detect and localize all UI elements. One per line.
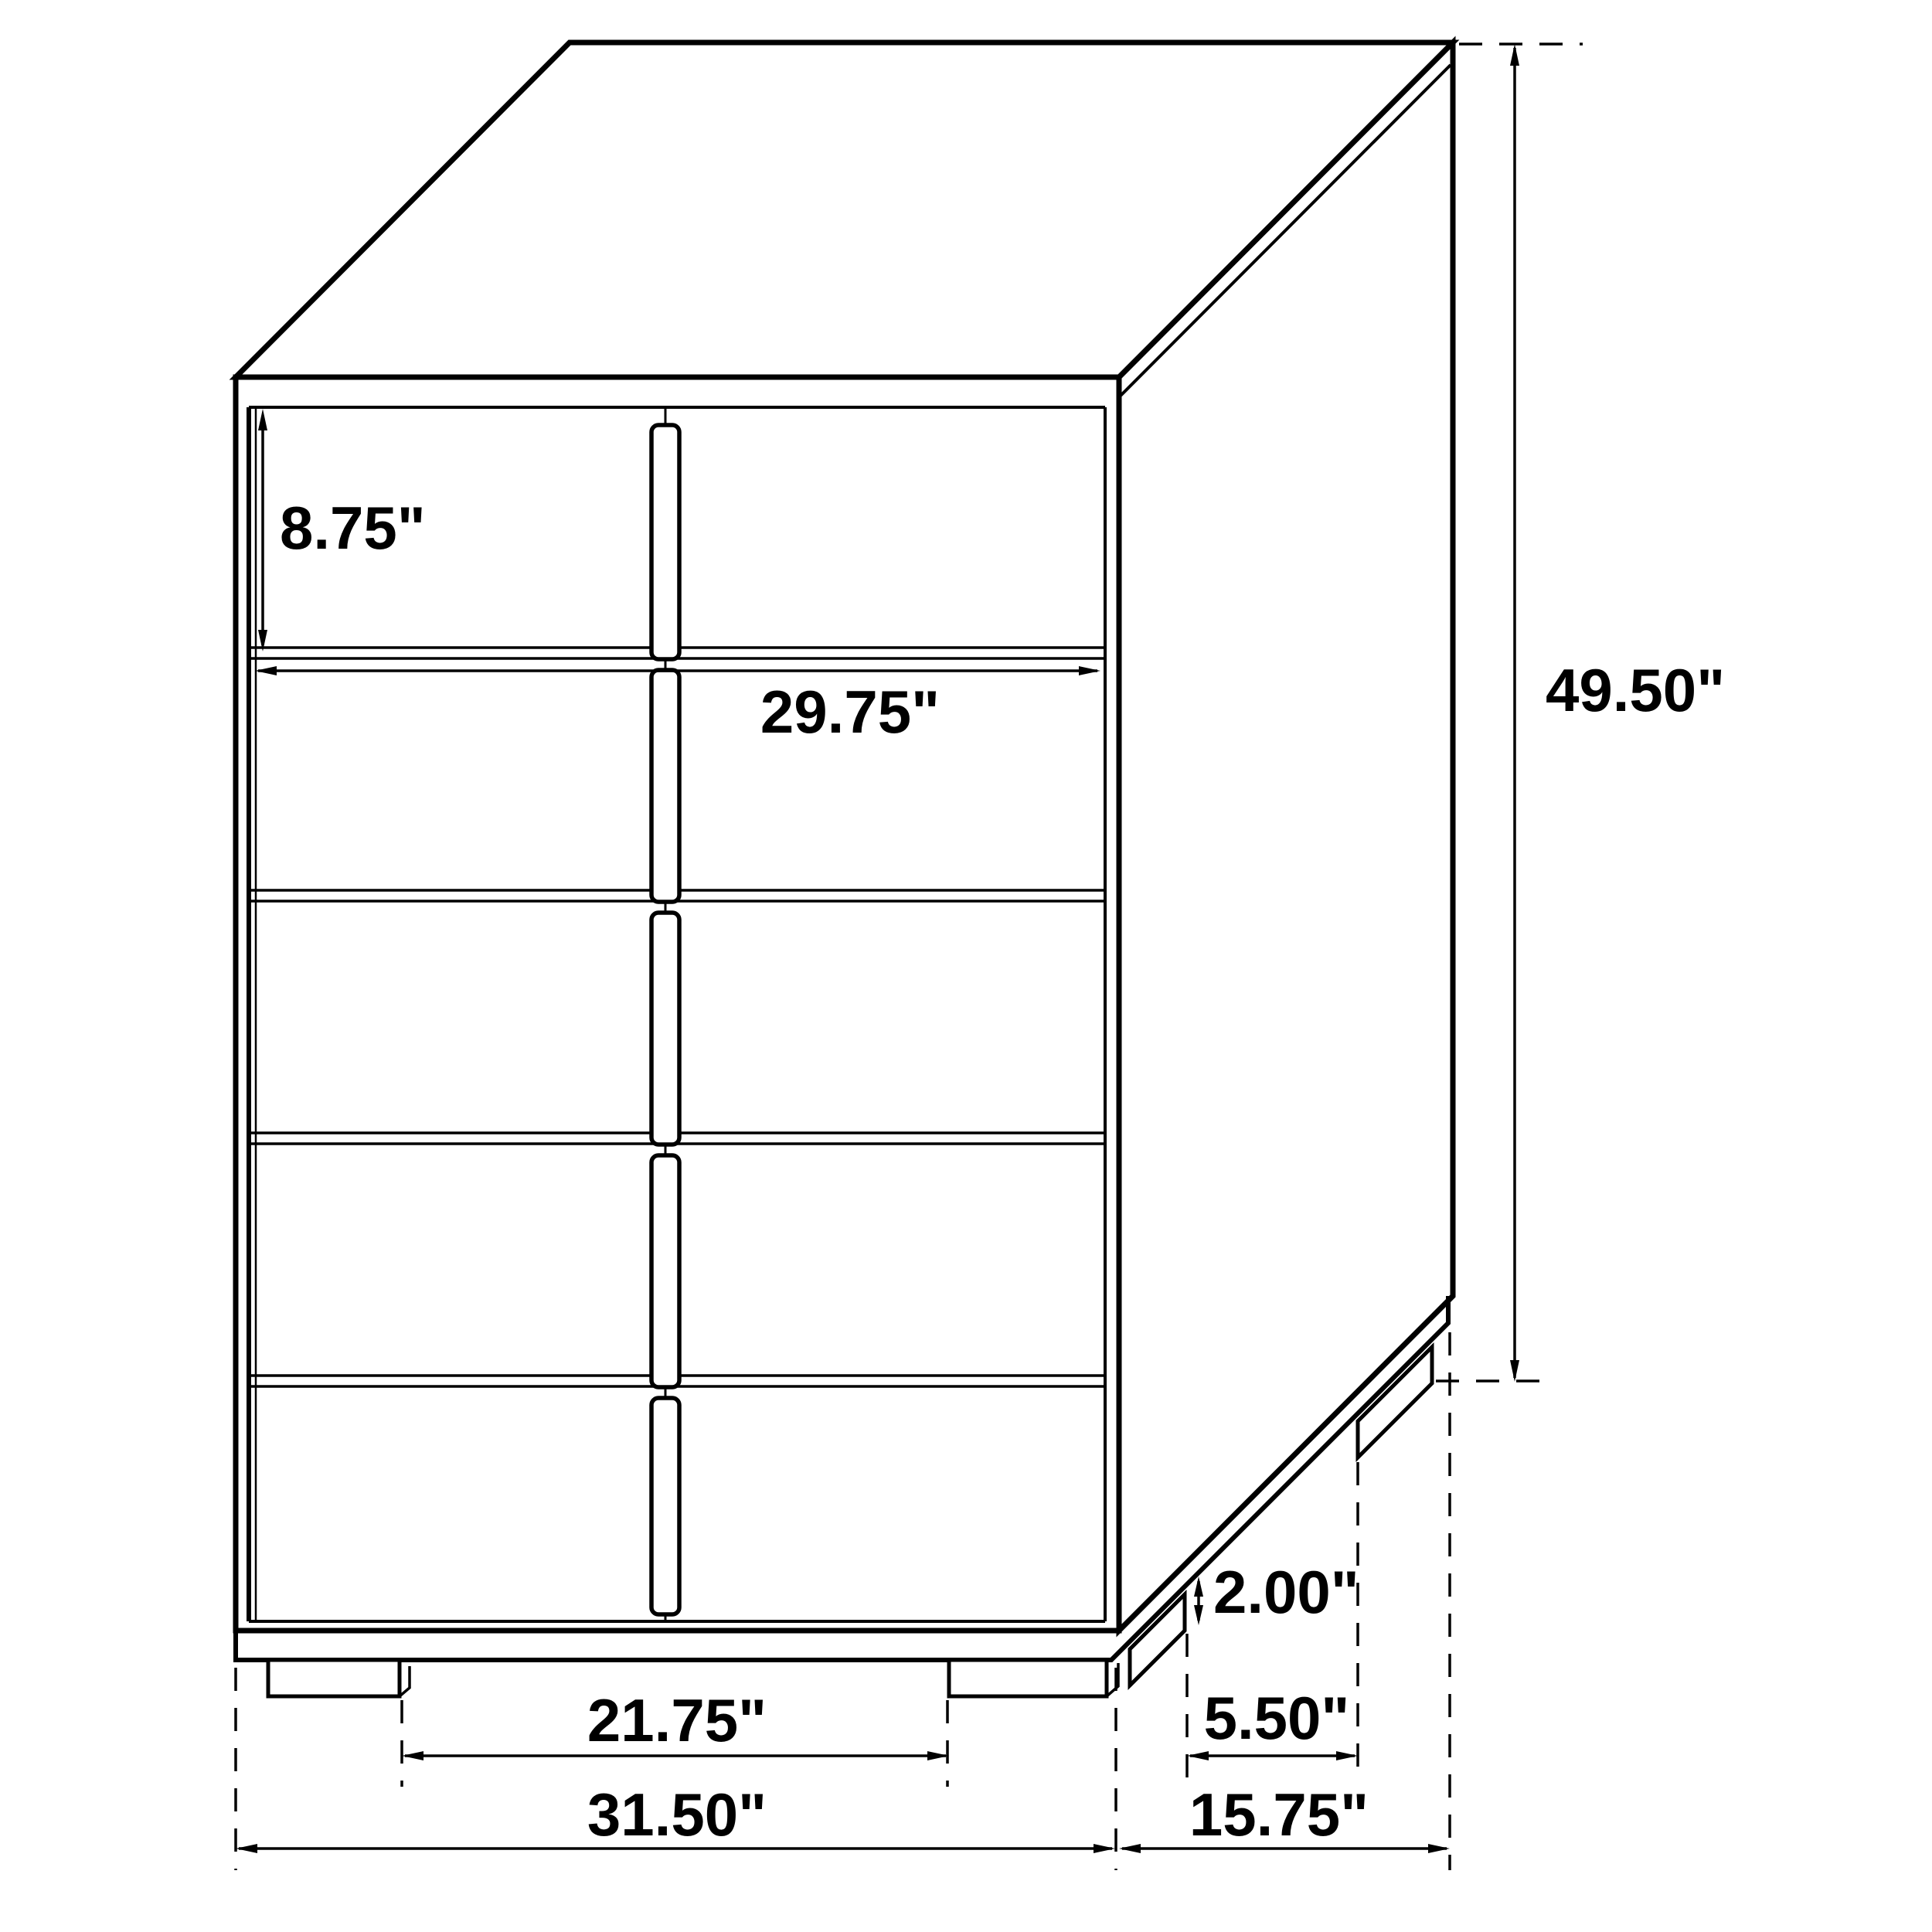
dimension-label-foot-height: 2.00" xyxy=(1213,1558,1359,1626)
drawer-handle xyxy=(651,1398,679,1614)
dimension-label-drawer-front-height: 8.75" xyxy=(280,494,426,562)
dimension-label-overall-width: 31.50" xyxy=(587,1781,767,1849)
drawer-handle xyxy=(651,670,679,902)
dimension-label-side-foot-spacing: 5.50" xyxy=(1204,1684,1350,1752)
dimension-label-overall-depth: 15.75" xyxy=(1189,1781,1369,1849)
dimension-label-drawer-width: 29.75" xyxy=(760,678,940,746)
chest-dimension-diagram: 8.75" 29.75" 49.50" 2.00" 21.75" 5.50" xyxy=(0,0,1932,1932)
dimension-label-overall-height: 49.50" xyxy=(1546,656,1725,724)
drawer-handle xyxy=(651,913,679,1145)
drawer-handle xyxy=(651,1155,679,1387)
front-left-foot xyxy=(268,1660,400,1696)
dimension-label-front-foot-spacing: 21.75" xyxy=(587,1686,767,1754)
drawer-handle xyxy=(651,425,679,659)
front-right-foot xyxy=(949,1660,1107,1696)
dimension-drawing-page: 8.75" 29.75" 49.50" 2.00" 21.75" 5.50" xyxy=(0,0,1932,1932)
cabinet-body xyxy=(236,43,1453,1696)
drawer-handles xyxy=(651,425,679,1614)
dimension-foot-height: 2.00" xyxy=(1194,1558,1359,1626)
